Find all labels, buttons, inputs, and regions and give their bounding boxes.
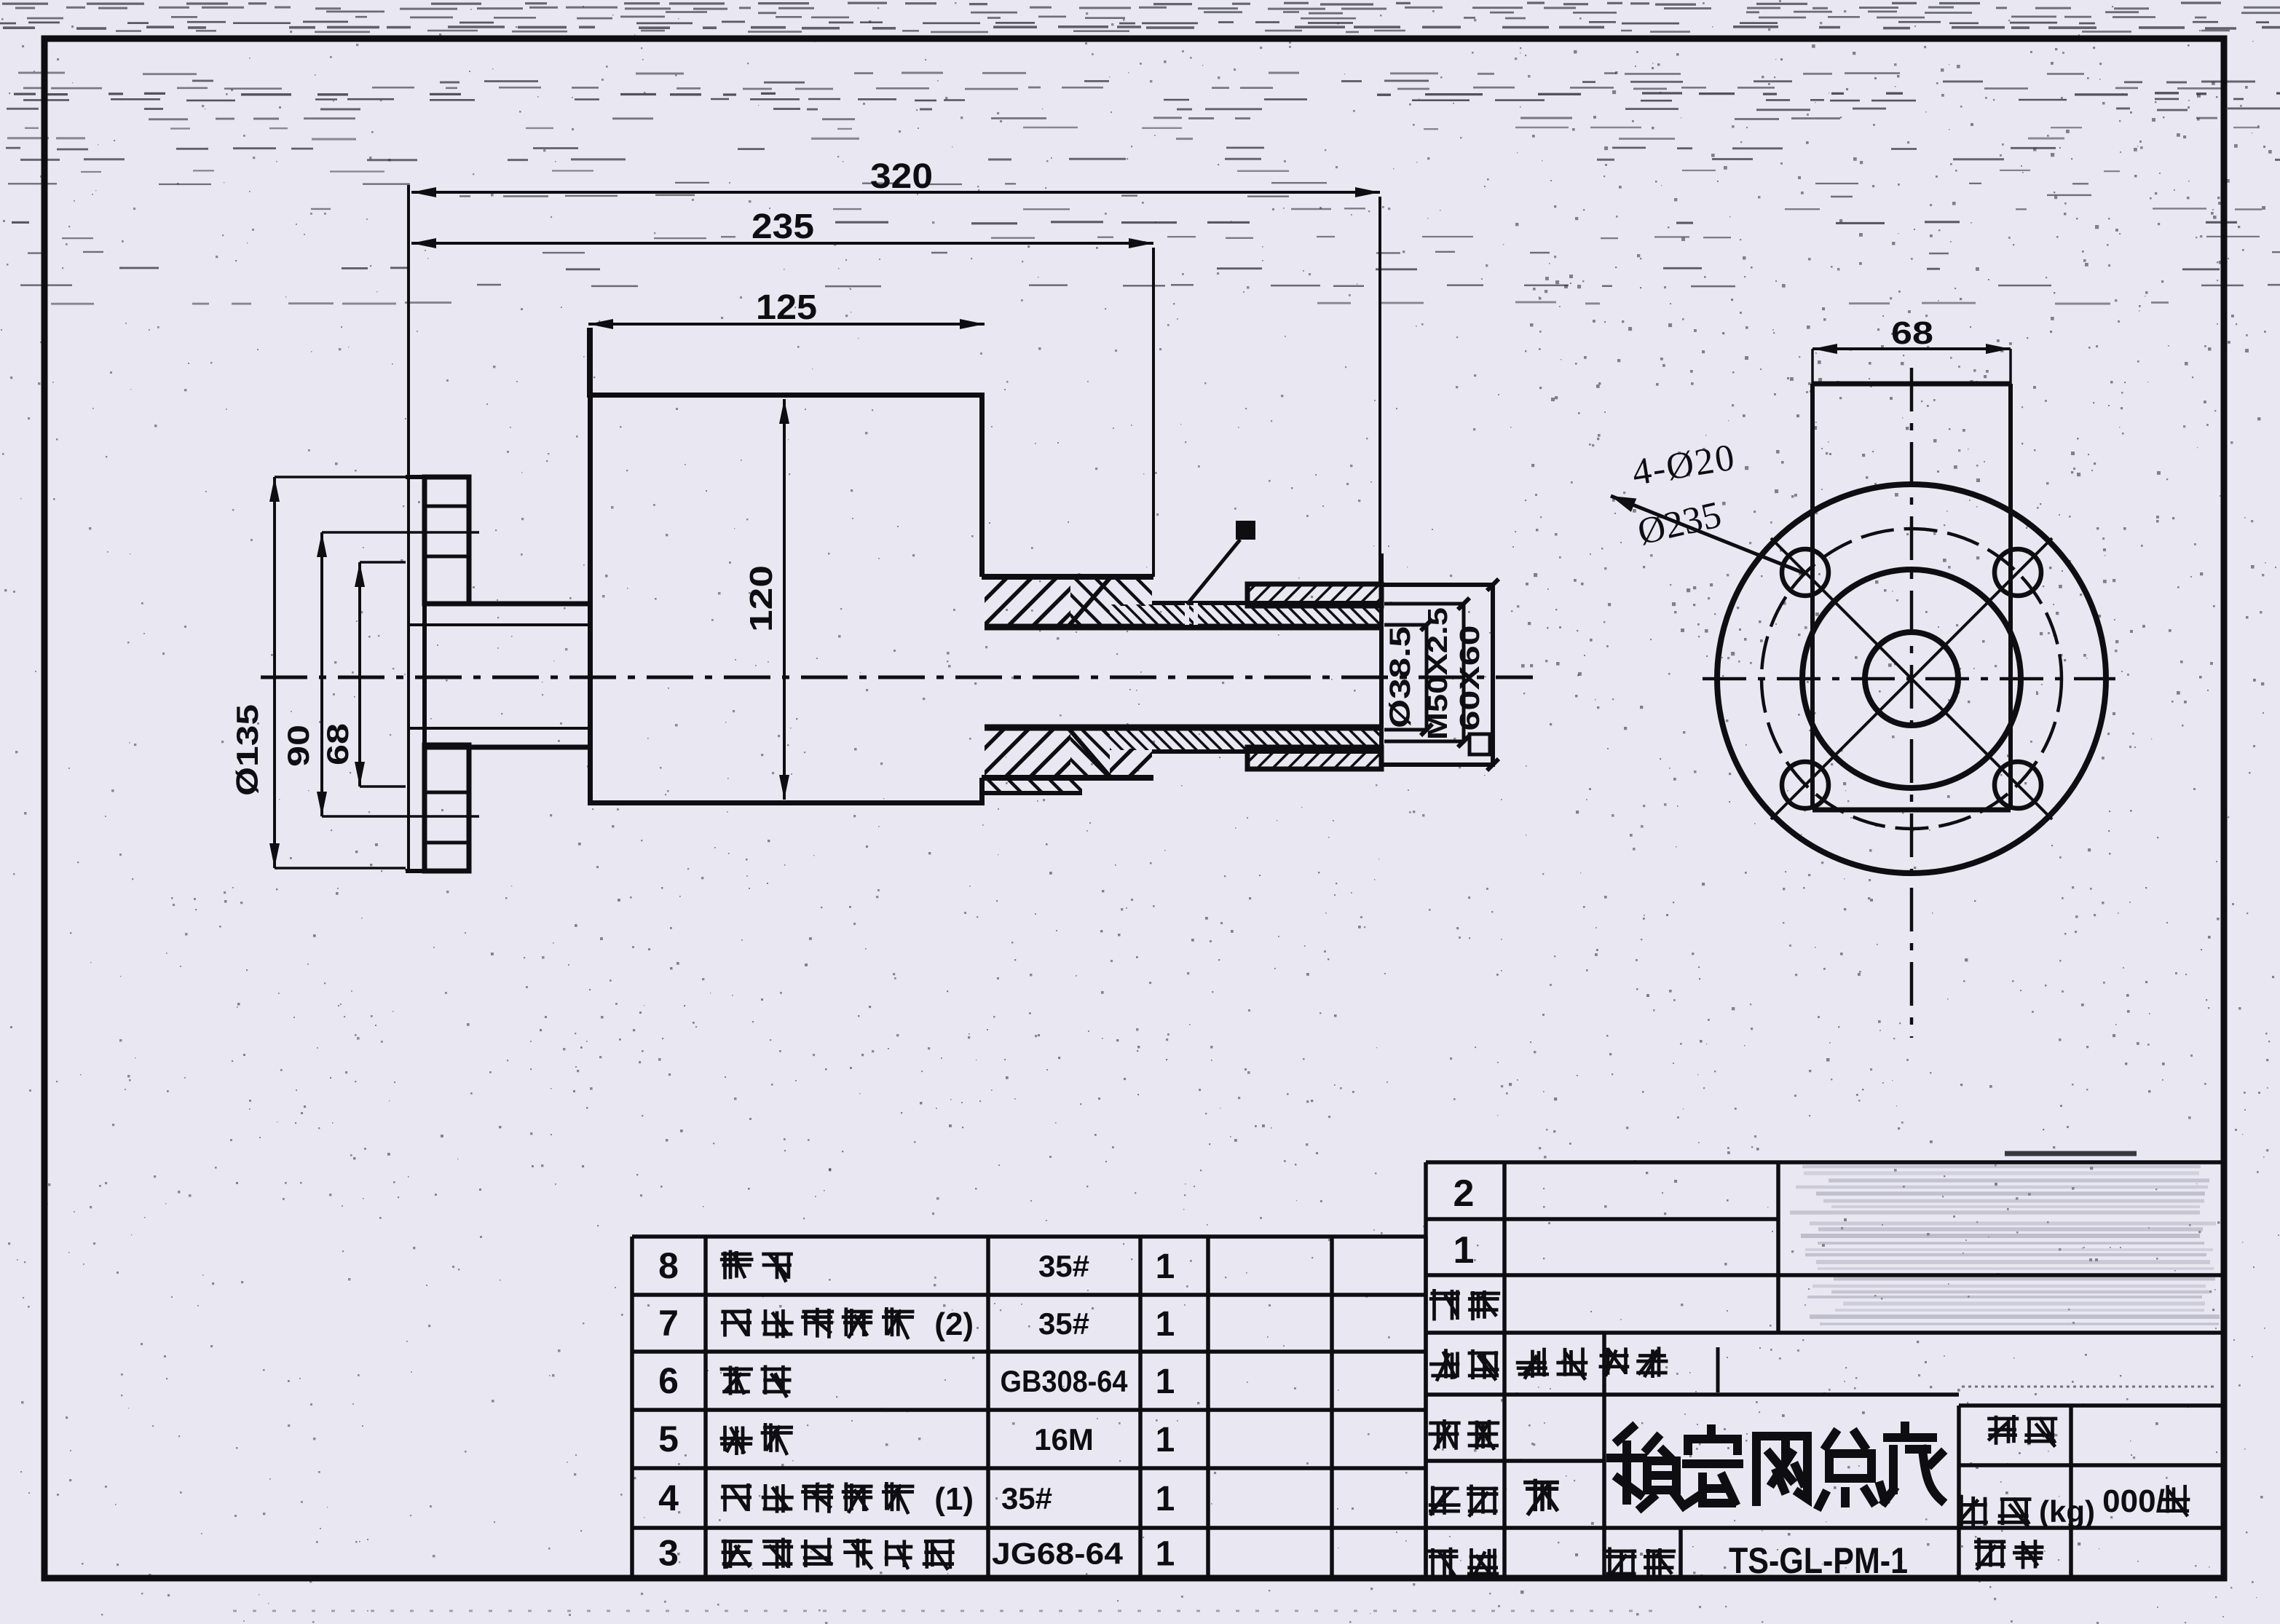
svg-text:1: 1 bbox=[1156, 1305, 1175, 1344]
svg-text:1: 1 bbox=[1156, 1535, 1175, 1574]
svg-text:7: 7 bbox=[658, 1303, 679, 1344]
svg-text:1: 1 bbox=[1156, 1480, 1175, 1518]
svg-text:JG68-64: JG68-64 bbox=[992, 1537, 1124, 1571]
svg-text:1: 1 bbox=[1453, 1229, 1475, 1272]
svg-text:3: 3 bbox=[658, 1533, 679, 1574]
svg-text:Ø135: Ø135 bbox=[230, 704, 264, 796]
svg-text:35#: 35# bbox=[1038, 1249, 1089, 1283]
svg-text:M50X2.5: M50X2.5 bbox=[1423, 607, 1453, 740]
svg-text:2: 2 bbox=[1453, 1172, 1475, 1215]
svg-text:(2): (2) bbox=[934, 1306, 974, 1342]
svg-text:Ø38.5: Ø38.5 bbox=[1384, 626, 1416, 728]
svg-text:35#: 35# bbox=[1038, 1306, 1089, 1341]
svg-text:125: 125 bbox=[756, 288, 817, 327]
svg-text:GB308-64: GB308-64 bbox=[1001, 1364, 1129, 1398]
svg-text:(kg): (kg) bbox=[2039, 1494, 2095, 1529]
svg-text:1: 1 bbox=[1156, 1247, 1175, 1286]
svg-text:8: 8 bbox=[658, 1245, 679, 1286]
svg-text:320: 320 bbox=[870, 157, 933, 196]
svg-text:4: 4 bbox=[658, 1478, 679, 1518]
svg-text:68: 68 bbox=[1891, 315, 1933, 351]
svg-text:90: 90 bbox=[281, 725, 315, 767]
svg-text:TS-GL-PM-1: TS-GL-PM-1 bbox=[1729, 1540, 1908, 1581]
svg-text:1: 1 bbox=[1156, 1363, 1175, 1401]
svg-text:60X60: 60X60 bbox=[1455, 626, 1486, 731]
svg-text:5: 5 bbox=[658, 1419, 679, 1459]
svg-text:(1): (1) bbox=[934, 1481, 974, 1517]
svg-text:000/: 000/ bbox=[2102, 1483, 2165, 1519]
svg-text:235: 235 bbox=[752, 208, 814, 246]
svg-text:1: 1 bbox=[1156, 1421, 1175, 1459]
svg-text:35#: 35# bbox=[1001, 1481, 1052, 1515]
svg-text:120: 120 bbox=[743, 565, 779, 632]
svg-text:6: 6 bbox=[658, 1360, 679, 1401]
svg-text:16M: 16M bbox=[1034, 1422, 1094, 1457]
svg-text:68: 68 bbox=[320, 723, 355, 765]
